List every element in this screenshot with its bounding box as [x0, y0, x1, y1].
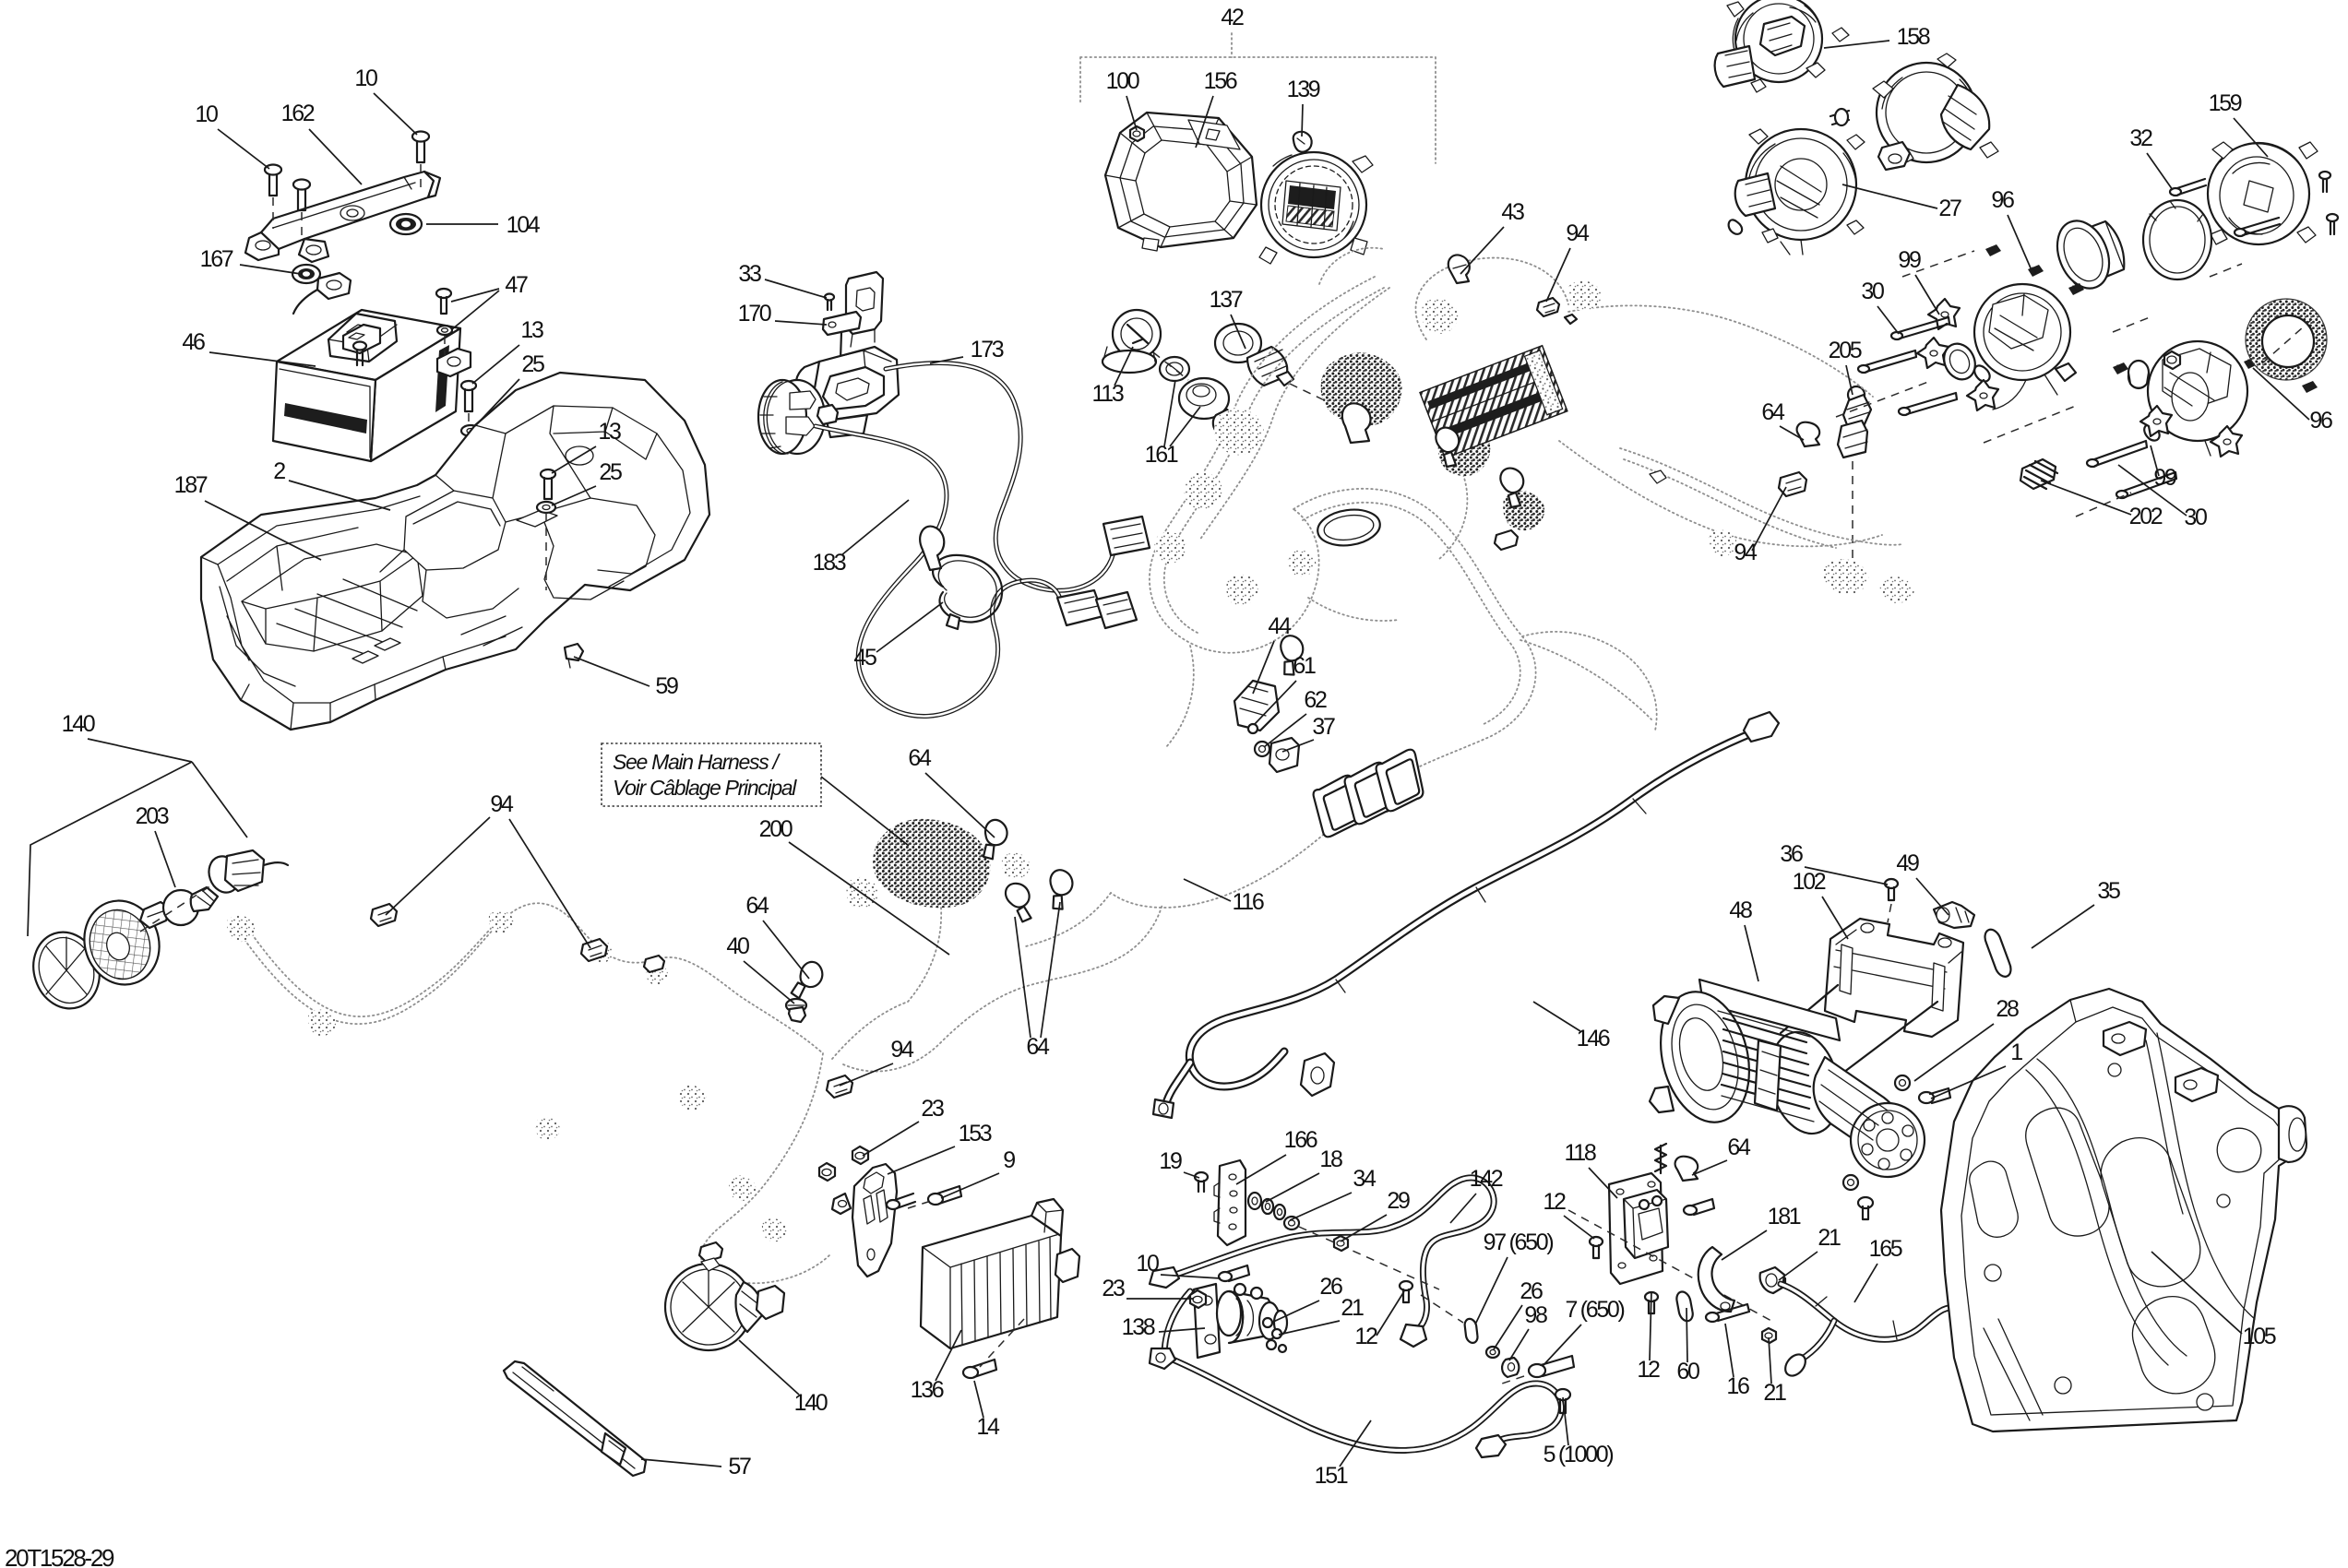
- svg-text:See Main Harness /: See Main Harness /: [613, 750, 781, 774]
- svg-text:61: 61: [1293, 653, 1316, 679]
- svg-text:94: 94: [490, 791, 514, 817]
- svg-text:9: 9: [1003, 1147, 1015, 1173]
- svg-text:35: 35: [2097, 878, 2120, 904]
- svg-text:97 (650): 97 (650): [1484, 1229, 1554, 1255]
- svg-text:99: 99: [1898, 247, 1921, 273]
- svg-text:136: 136: [911, 1377, 944, 1403]
- svg-text:137: 137: [1210, 287, 1243, 313]
- svg-text:23: 23: [1102, 1276, 1125, 1301]
- svg-text:94: 94: [1566, 220, 1590, 246]
- svg-text:12: 12: [1543, 1189, 1566, 1215]
- svg-text:44: 44: [1268, 613, 1292, 639]
- svg-text:14: 14: [976, 1414, 1000, 1440]
- svg-text:167: 167: [200, 246, 233, 272]
- svg-text:23: 23: [921, 1096, 944, 1122]
- svg-text:19: 19: [1159, 1148, 1182, 1174]
- svg-text:1: 1: [2010, 1039, 2022, 1065]
- svg-text:118: 118: [1565, 1140, 1596, 1166]
- svg-text:21: 21: [1341, 1295, 1364, 1321]
- svg-text:98: 98: [1524, 1302, 1547, 1328]
- svg-text:94: 94: [1734, 540, 1758, 565]
- svg-text:5 (1000): 5 (1000): [1543, 1442, 1614, 1467]
- svg-text:165: 165: [1869, 1236, 1902, 1262]
- svg-text:183: 183: [813, 550, 846, 576]
- svg-text:151: 151: [1315, 1463, 1348, 1489]
- svg-text:140: 140: [62, 711, 95, 737]
- svg-text:18: 18: [1319, 1146, 1342, 1172]
- svg-text:27: 27: [1938, 196, 1961, 221]
- svg-text:40: 40: [726, 933, 749, 959]
- svg-text:116: 116: [1233, 889, 1264, 915]
- svg-text:45: 45: [853, 645, 876, 671]
- svg-text:57: 57: [728, 1454, 751, 1479]
- svg-text:29: 29: [1387, 1188, 1410, 1214]
- svg-text:26: 26: [1520, 1278, 1543, 1304]
- svg-text:200: 200: [759, 816, 793, 842]
- svg-text:139: 139: [1287, 77, 1320, 102]
- svg-text:28: 28: [1996, 996, 2019, 1022]
- svg-text:36: 36: [1780, 841, 1803, 867]
- svg-text:64: 64: [1761, 399, 1785, 425]
- svg-text:170: 170: [738, 301, 771, 327]
- svg-text:113: 113: [1092, 381, 1124, 407]
- svg-text:64: 64: [745, 893, 769, 919]
- svg-text:166: 166: [1284, 1127, 1317, 1153]
- svg-text:2: 2: [273, 458, 285, 484]
- svg-text:162: 162: [281, 101, 315, 126]
- svg-text:49: 49: [1896, 850, 1919, 876]
- svg-text:10: 10: [1136, 1251, 1159, 1277]
- svg-text:46: 46: [182, 329, 205, 355]
- svg-text:26: 26: [1319, 1274, 1342, 1300]
- svg-text:10: 10: [354, 65, 377, 91]
- svg-text:105: 105: [2243, 1324, 2276, 1349]
- svg-text:159: 159: [2209, 90, 2242, 116]
- svg-text:96: 96: [1991, 187, 2014, 213]
- svg-text:37: 37: [1312, 714, 1335, 740]
- svg-text:43: 43: [1501, 199, 1524, 225]
- svg-text:96: 96: [2309, 408, 2332, 434]
- svg-text:142: 142: [1470, 1166, 1503, 1192]
- svg-text:205: 205: [1829, 338, 1862, 363]
- svg-text:100: 100: [1106, 68, 1139, 94]
- svg-text:102: 102: [1793, 869, 1826, 895]
- svg-text:47: 47: [505, 272, 528, 298]
- svg-text:161: 161: [1145, 442, 1178, 468]
- svg-text:158: 158: [1897, 24, 1930, 50]
- svg-text:16: 16: [1726, 1373, 1749, 1399]
- svg-text:33: 33: [738, 261, 761, 287]
- svg-text:94: 94: [890, 1037, 914, 1063]
- svg-text:13: 13: [598, 419, 621, 445]
- svg-text:12: 12: [1354, 1324, 1377, 1349]
- svg-text:153: 153: [959, 1121, 992, 1146]
- svg-text:104: 104: [507, 212, 541, 238]
- svg-text:146: 146: [1577, 1026, 1610, 1051]
- svg-text:25: 25: [599, 459, 622, 485]
- svg-text:21: 21: [1763, 1380, 1786, 1406]
- svg-text:62: 62: [1304, 687, 1327, 713]
- svg-text:42: 42: [1221, 5, 1244, 30]
- svg-text:64: 64: [1727, 1134, 1751, 1160]
- svg-text:156: 156: [1204, 68, 1237, 94]
- svg-text:13: 13: [520, 317, 543, 343]
- svg-text:138: 138: [1122, 1314, 1155, 1340]
- svg-text:60: 60: [1676, 1359, 1699, 1384]
- svg-text:59: 59: [655, 673, 678, 699]
- svg-text:34: 34: [1353, 1166, 1377, 1192]
- svg-text:48: 48: [1729, 897, 1752, 923]
- svg-text:25: 25: [521, 351, 544, 377]
- svg-text:30: 30: [2184, 505, 2207, 530]
- svg-text:10: 10: [195, 101, 218, 127]
- svg-text:21: 21: [1818, 1225, 1841, 1251]
- svg-text:202: 202: [2129, 504, 2163, 529]
- svg-text:64: 64: [1026, 1034, 1050, 1060]
- svg-text:12: 12: [1637, 1357, 1660, 1383]
- svg-text:32: 32: [2129, 125, 2152, 151]
- svg-text:30: 30: [1861, 279, 1884, 304]
- svg-text:7 (650): 7 (650): [1565, 1297, 1624, 1323]
- svg-text:181: 181: [1768, 1204, 1801, 1229]
- svg-text:203: 203: [136, 803, 169, 829]
- svg-text:64: 64: [908, 745, 932, 771]
- svg-text:20T1528-29: 20T1528-29: [5, 1544, 114, 1568]
- svg-text:187: 187: [174, 472, 208, 498]
- svg-text:173: 173: [971, 337, 1004, 362]
- svg-text:Voir Câblage Principal: Voir Câblage Principal: [613, 776, 797, 800]
